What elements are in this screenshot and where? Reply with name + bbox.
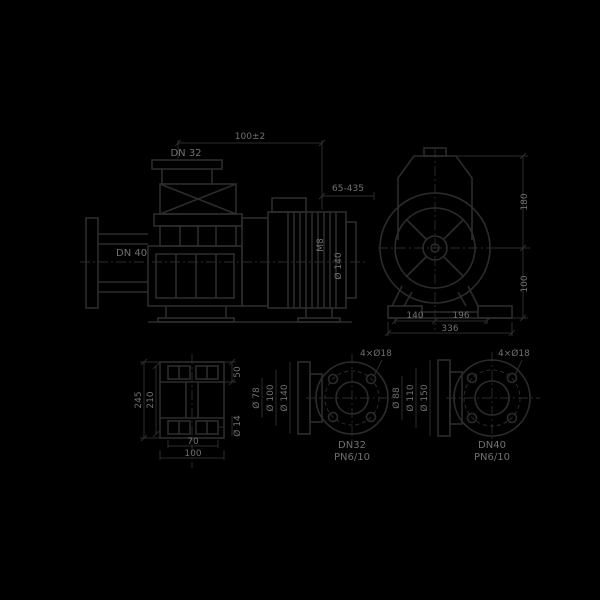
dim-label-foot-spacing-right: 196 bbox=[452, 311, 469, 321]
dim-label-height-lower: 100 bbox=[520, 275, 530, 292]
dim-label-flange-b-bolt-holes: 4×Ø18 bbox=[498, 348, 530, 359]
dim-label-foot-width-inner: 210 bbox=[146, 391, 156, 408]
dim-label-flange-a-bolt-circle: Ø 100 bbox=[265, 384, 276, 411]
dim-label-rail-height: 50 bbox=[233, 366, 243, 378]
label-flange-b-pressure: PN6/10 bbox=[474, 452, 510, 463]
dim-label-foot-hole-dia: Ø 14 bbox=[232, 415, 243, 437]
dim-label-foot-length-inner: 70 bbox=[187, 437, 199, 447]
dim-label-flange-a-inner: Ø 78 bbox=[251, 387, 262, 409]
dim-label-base-width: 336 bbox=[441, 324, 458, 334]
dim-label-flange-a-outer: Ø 140 bbox=[279, 384, 290, 411]
dim-label-foot-width-outer: 245 bbox=[134, 391, 144, 408]
dim-label-height-upper: 180 bbox=[520, 193, 530, 210]
label-suction-flange: DN 40 bbox=[116, 248, 147, 259]
pump-dimension-drawing: 100±2 65-435 DN 32 DN 40 M8 Ø 140 bbox=[0, 0, 600, 600]
dim-label-foot-spacing-left: 140 bbox=[406, 311, 423, 321]
dim-label-motor-flange-dia: Ø 140 bbox=[333, 252, 344, 279]
dim-label-flange-b-bolt-circle: Ø 110 bbox=[405, 384, 416, 411]
dim-label-foot-length-outer: 100 bbox=[184, 449, 201, 459]
label-discharge-flange: DN 32 bbox=[170, 148, 201, 159]
dim-label-flange-a-bolt-holes: 4×Ø18 bbox=[360, 348, 392, 359]
dim-label-length-tolerance: 100±2 bbox=[235, 132, 265, 142]
dim-label-flange-b-outer: Ø 150 bbox=[419, 384, 430, 411]
label-flange-a-size: DN32 bbox=[338, 440, 366, 451]
dim-label-coupling: M8 bbox=[316, 238, 326, 252]
dim-label-flange-b-inner: Ø 88 bbox=[391, 387, 402, 409]
dim-label-motor-range: 65-435 bbox=[332, 184, 364, 194]
label-flange-a-pressure: PN6/10 bbox=[334, 452, 370, 463]
label-flange-b-size: DN40 bbox=[478, 440, 506, 451]
